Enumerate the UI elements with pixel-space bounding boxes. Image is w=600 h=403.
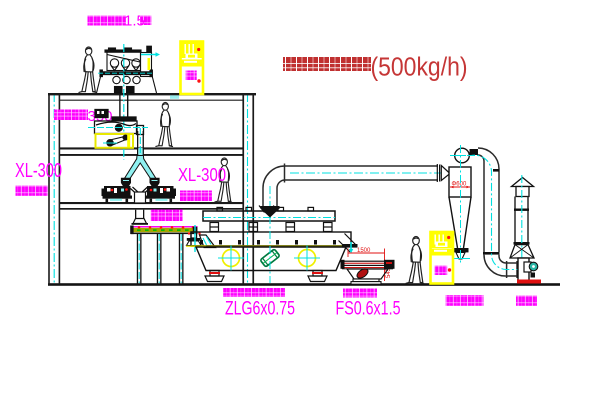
svg-text:FS0.6x1.5: FS0.6x1.5 — [336, 299, 401, 320]
svg-text:(500kg/h): (500kg/h) — [371, 54, 468, 82]
svg-text:1500: 1500 — [357, 248, 371, 254]
svg-text:ZLG6x0.75: ZLG6x0.75 — [225, 299, 295, 320]
svg-text:XL-300: XL-300 — [15, 160, 62, 182]
svg-text:XL-300: XL-300 — [178, 164, 226, 185]
